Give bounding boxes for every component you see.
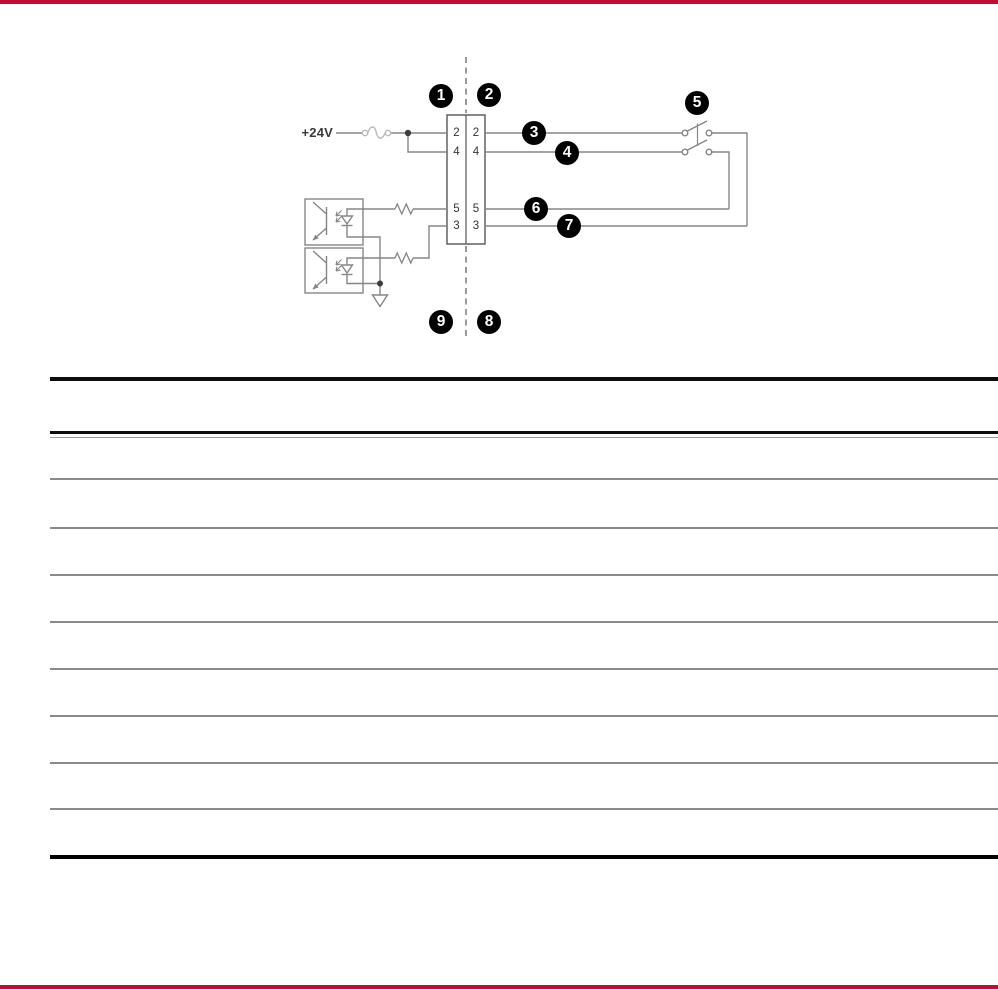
callout-4: 4 bbox=[555, 141, 579, 165]
junction-dots bbox=[377, 130, 411, 287]
ground-icon bbox=[373, 295, 388, 307]
manual-page: { "page": { "accent_color": "#C00D33", "… bbox=[0, 0, 998, 990]
circuit-svg bbox=[0, 0, 998, 360]
table-header-separator bbox=[50, 431, 998, 434]
callout-3: 3 bbox=[522, 121, 546, 145]
legend-table bbox=[0, 360, 998, 870]
callout-7: 7 bbox=[557, 214, 581, 238]
callout-1: 1 bbox=[429, 84, 453, 108]
table-bottom-border bbox=[50, 855, 998, 859]
callout-6: 6 bbox=[524, 197, 548, 221]
table-top-border bbox=[50, 377, 998, 381]
terminal-pin-left-4: 4 bbox=[449, 145, 465, 159]
terminal-pin-left-2: 2 bbox=[449, 126, 465, 140]
terminal-pin-right-4: 4 bbox=[468, 145, 484, 159]
callout-5: 5 bbox=[685, 91, 709, 115]
table-row-divider bbox=[50, 574, 998, 576]
terminal-pin-right-3: 3 bbox=[468, 219, 484, 233]
terminal-pin-left-5: 5 bbox=[449, 202, 465, 216]
table-row-divider bbox=[50, 668, 998, 670]
table-row-divider bbox=[50, 808, 998, 810]
callout-2: 2 bbox=[477, 83, 501, 107]
optocoupler-2-icon bbox=[305, 248, 363, 293]
callout-8: 8 bbox=[477, 310, 501, 334]
supply-voltage-label: +24V bbox=[293, 126, 333, 140]
table-row-divider bbox=[50, 762, 998, 764]
table-header-shadow bbox=[50, 437, 998, 439]
terminal-pin-right-2: 2 bbox=[468, 126, 484, 140]
fuse-icon bbox=[362, 127, 390, 138]
terminal-pin-right-5: 5 bbox=[468, 202, 484, 216]
optocoupler-1-icon bbox=[305, 199, 363, 245]
terminal-pin-left-3: 3 bbox=[449, 219, 465, 233]
table-row-divider bbox=[50, 527, 998, 529]
resistor-2 bbox=[395, 253, 413, 263]
callout-9: 9 bbox=[429, 310, 453, 334]
resistor-1 bbox=[395, 204, 413, 214]
wiring-diagram: +24V 2 4 5 3 2 4 5 3 1 2 3 4 5 6 7 8 9 bbox=[0, 0, 998, 360]
resistor-icons bbox=[395, 204, 413, 263]
table-row-divider bbox=[50, 715, 998, 717]
table-row-divider bbox=[50, 621, 998, 623]
bottom-accent-bar bbox=[0, 985, 998, 989]
table-row-divider bbox=[50, 478, 998, 480]
switch-dpst-icon bbox=[682, 121, 712, 155]
